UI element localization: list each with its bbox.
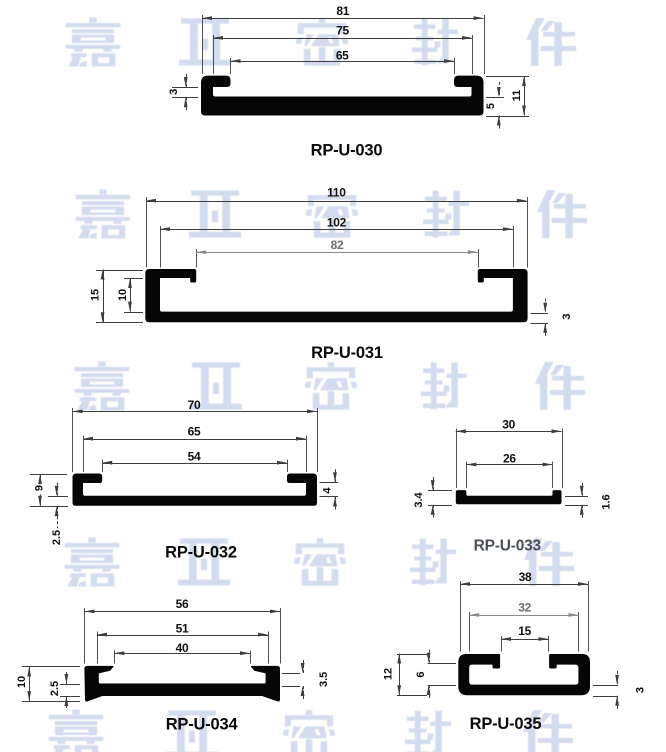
svg-text:4: 4 bbox=[321, 487, 333, 494]
svg-text:RP-U-032: RP-U-032 bbox=[165, 543, 237, 561]
svg-text:15: 15 bbox=[518, 624, 531, 638]
svg-text:65: 65 bbox=[188, 425, 201, 439]
svg-text:32: 32 bbox=[518, 601, 531, 615]
svg-text:56: 56 bbox=[176, 597, 189, 611]
svg-text:70: 70 bbox=[188, 398, 201, 412]
svg-text:1.6: 1.6 bbox=[600, 494, 612, 509]
svg-text:65: 65 bbox=[336, 48, 349, 62]
svg-text:10: 10 bbox=[16, 676, 28, 688]
svg-text:38: 38 bbox=[519, 570, 532, 584]
svg-text:102: 102 bbox=[327, 216, 347, 230]
svg-text:11: 11 bbox=[511, 90, 523, 102]
svg-text:3.5: 3.5 bbox=[318, 672, 330, 687]
svg-text:3.4: 3.4 bbox=[413, 491, 425, 507]
svg-text:12: 12 bbox=[383, 668, 395, 680]
svg-text:RP-U-031: RP-U-031 bbox=[311, 344, 383, 362]
svg-text:9: 9 bbox=[33, 485, 45, 491]
svg-text:RP-U-035: RP-U-035 bbox=[470, 715, 542, 733]
svg-text:110: 110 bbox=[327, 186, 346, 200]
svg-text:26: 26 bbox=[503, 452, 516, 466]
svg-text:30: 30 bbox=[502, 417, 515, 431]
svg-text:2.5: 2.5 bbox=[49, 681, 61, 696]
svg-text:5: 5 bbox=[485, 103, 497, 109]
svg-text:51: 51 bbox=[176, 621, 189, 635]
svg-text:2.5: 2.5 bbox=[51, 530, 63, 545]
svg-text:82: 82 bbox=[331, 238, 344, 252]
svg-text:40: 40 bbox=[176, 641, 189, 655]
svg-text:54: 54 bbox=[188, 449, 201, 463]
svg-text:RP-U-030: RP-U-030 bbox=[311, 141, 383, 159]
svg-text:3: 3 bbox=[634, 687, 646, 693]
svg-text:RP-U-034: RP-U-034 bbox=[166, 716, 239, 734]
svg-text:10: 10 bbox=[117, 289, 129, 301]
svg-text:75: 75 bbox=[336, 24, 349, 38]
svg-text:81: 81 bbox=[336, 4, 349, 18]
svg-text:3: 3 bbox=[561, 313, 573, 319]
svg-text:15: 15 bbox=[90, 289, 102, 301]
svg-text:6: 6 bbox=[415, 671, 427, 677]
svg-text:RP-U-033: RP-U-033 bbox=[474, 537, 542, 554]
svg-text:3: 3 bbox=[168, 89, 180, 95]
